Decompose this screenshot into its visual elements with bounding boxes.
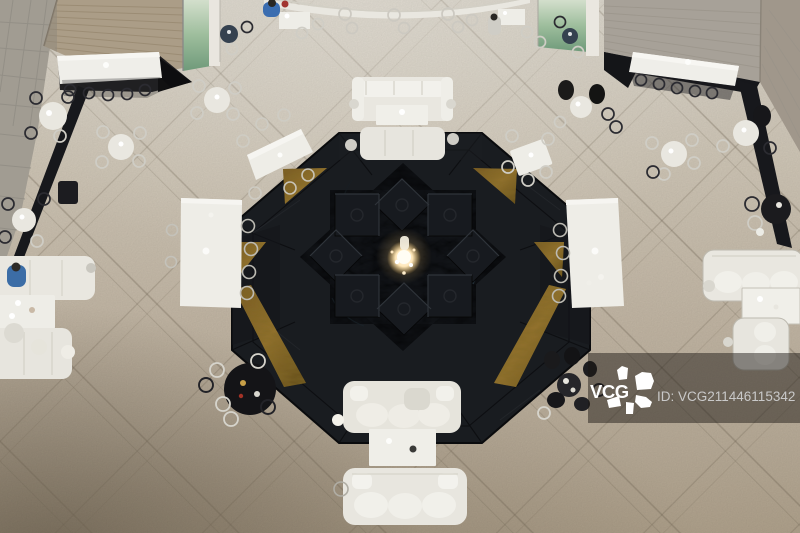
svg-text:ID: VCG211446115342: ID: VCG211446115342 <box>657 389 795 404</box>
svg-text:VCG: VCG <box>590 381 629 402</box>
